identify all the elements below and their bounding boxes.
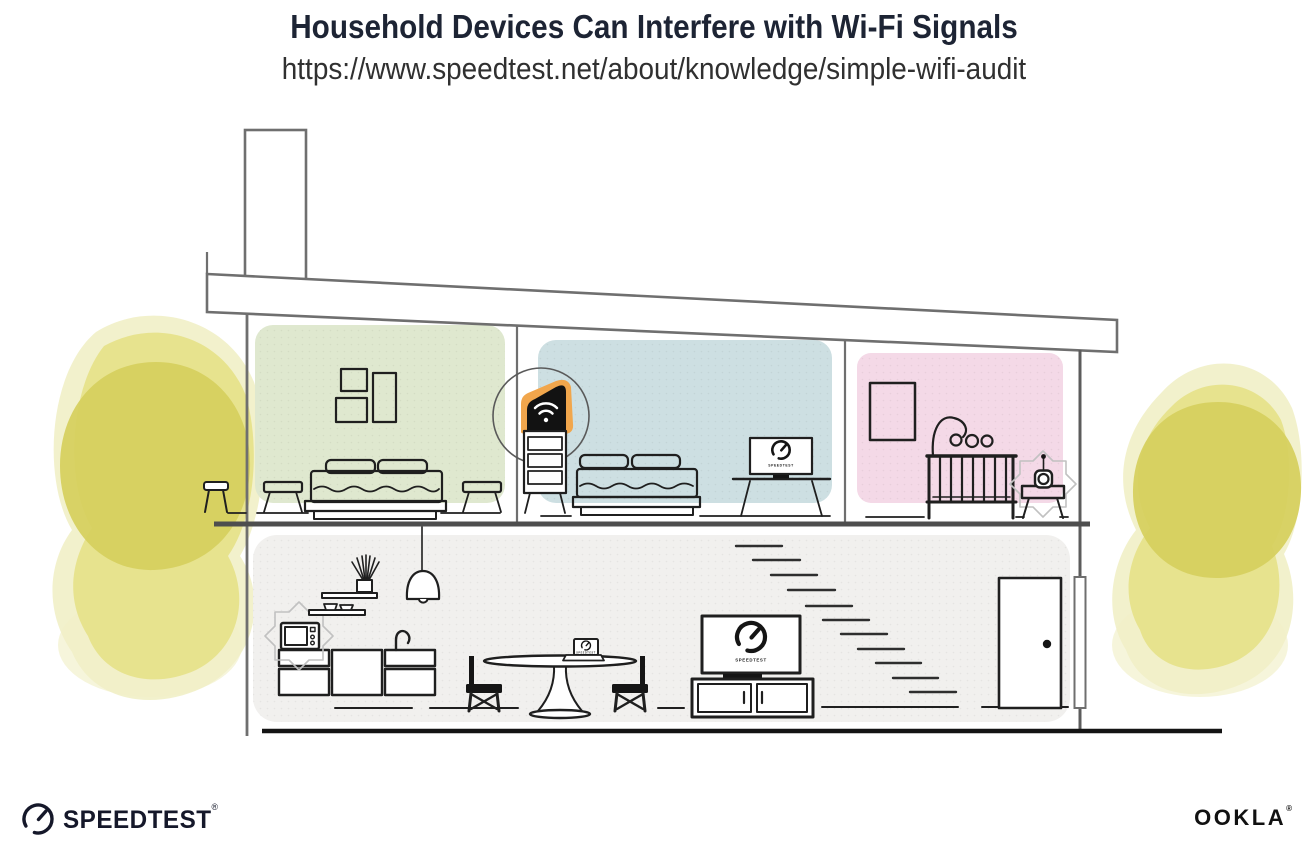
registered-mark: ® — [1286, 804, 1292, 813]
door — [999, 578, 1061, 708]
foliage-right — [1112, 363, 1302, 697]
chimney — [245, 130, 306, 285]
media-console — [692, 679, 813, 717]
tv-label: SPEEDTEST — [735, 658, 767, 663]
monitor-label: SPEEDTEST — [768, 464, 794, 468]
green-bedroom-texture — [255, 325, 505, 503]
nursery-texture — [857, 353, 1063, 503]
house-illustration: SPEEDTEST — [0, 0, 1308, 861]
kitchen-cabinets — [279, 650, 435, 695]
foliage-left-core — [60, 362, 250, 570]
tv: SPEEDTEST — [702, 616, 800, 678]
speedtest-gauge-icon — [22, 803, 54, 835]
ookla-logo: OOKLA® — [1194, 804, 1292, 831]
speedtest-logo: SPEEDTEST® — [22, 802, 223, 835]
bowl — [340, 605, 353, 610]
desk-monitor: SPEEDTEST — [750, 438, 812, 478]
registered-mark: ® — [212, 802, 219, 812]
foliage-right-core — [1133, 402, 1301, 578]
foliage-left — [52, 316, 263, 700]
drainpipe — [1075, 577, 1086, 708]
laptop-label: SPEEDTEST — [576, 652, 596, 655]
door-knob — [1043, 640, 1051, 648]
ookla-wordmark: OOKLA® — [1194, 805, 1292, 830]
speedtest-wordmark: SPEEDTEST® — [63, 802, 218, 835]
tv-stand — [723, 674, 762, 678]
bowl — [324, 604, 337, 610]
monitor-stand — [773, 475, 789, 478]
microwave-icon — [281, 623, 319, 649]
